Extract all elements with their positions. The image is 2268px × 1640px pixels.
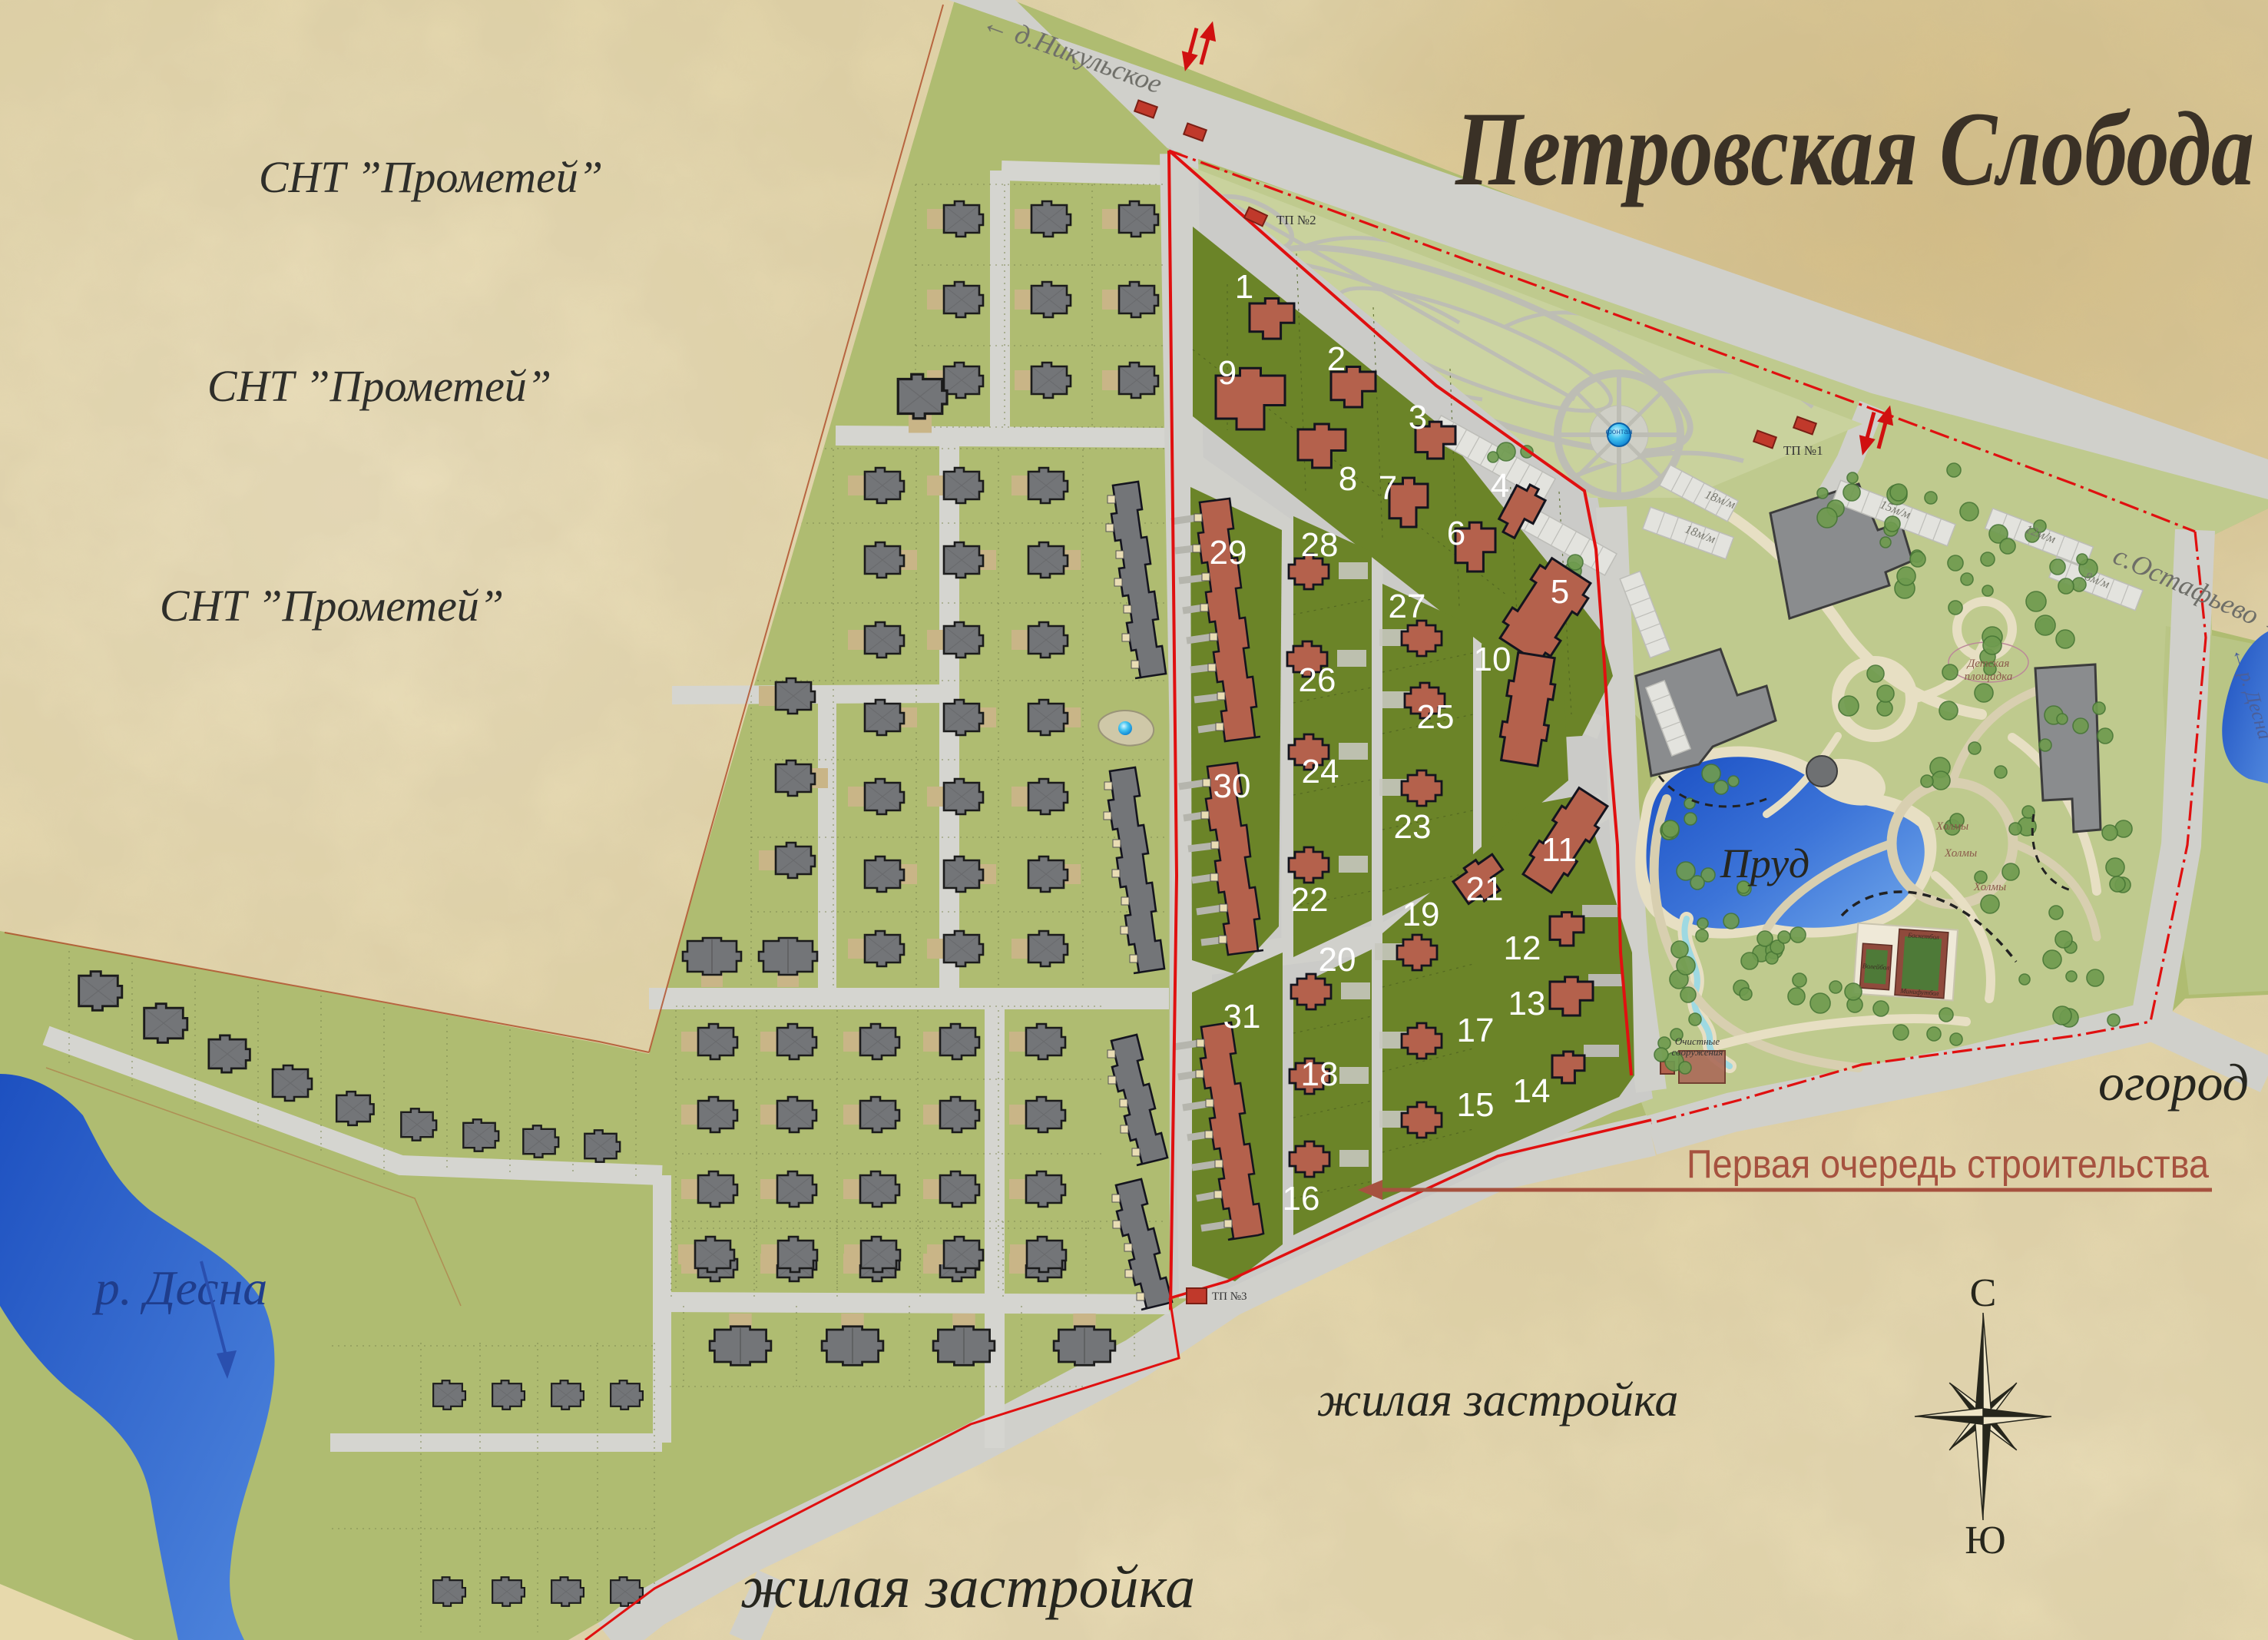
svg-text:4: 4 xyxy=(1491,467,1509,505)
svg-text:25: 25 xyxy=(1417,698,1455,736)
svg-text:18: 18 xyxy=(1301,1055,1339,1093)
svg-text:23: 23 xyxy=(1394,808,1432,846)
svg-text:СНТ ”Прометей”: СНТ ”Прометей” xyxy=(160,581,504,631)
svg-text:8: 8 xyxy=(1339,460,1357,498)
svg-text:19: 19 xyxy=(1402,896,1440,933)
svg-text:фонтан: фонтан xyxy=(1606,427,1633,436)
svg-text:15: 15 xyxy=(1457,1086,1495,1124)
svg-text:ТП №2: ТП №2 xyxy=(1276,213,1316,227)
svg-text:9: 9 xyxy=(1218,354,1237,392)
svg-text:26: 26 xyxy=(1299,661,1336,699)
svg-text:30: 30 xyxy=(1213,767,1251,805)
svg-text:1: 1 xyxy=(1235,268,1253,306)
svg-text:Холмы: Холмы xyxy=(1935,820,1968,833)
svg-text:Пруд: Пруд xyxy=(1720,840,1809,886)
svg-text:17: 17 xyxy=(1457,1012,1495,1049)
svg-text:сооружения: сооружения xyxy=(1672,1046,1723,1058)
svg-text:Петровская Слобода: Петровская Слобода xyxy=(1454,90,2254,207)
svg-text:жилая застройка: жилая застройка xyxy=(740,1553,1195,1620)
svg-text:5: 5 xyxy=(1551,573,1569,611)
svg-text:ТП №1: ТП №1 xyxy=(1783,443,1823,458)
svg-text:24: 24 xyxy=(1302,753,1339,790)
svg-text:жилая застройка: жилая застройка xyxy=(1317,1374,1679,1426)
svg-text:2: 2 xyxy=(1327,340,1346,378)
svg-text:16: 16 xyxy=(1283,1180,1320,1218)
svg-text:13: 13 xyxy=(1508,985,1546,1022)
svg-text:14: 14 xyxy=(1513,1072,1551,1110)
svg-text:Первая очередь строительства: Первая очередь строительства xyxy=(1687,1142,2209,1187)
svg-text:22: 22 xyxy=(1291,881,1329,919)
svg-text:СНТ ”Прометей”: СНТ ”Прометей” xyxy=(207,361,551,411)
svg-text:Детская: Детская xyxy=(1966,658,2010,670)
svg-text:31: 31 xyxy=(1223,998,1261,1035)
svg-text:12: 12 xyxy=(1504,929,1541,967)
svg-text:7: 7 xyxy=(1379,469,1397,507)
svg-text:3: 3 xyxy=(1409,399,1427,436)
svg-text:Холмы: Холмы xyxy=(1973,881,2006,893)
svg-text:Ю: Ю xyxy=(1965,1519,2005,1562)
svg-text:огород: огород xyxy=(2098,1053,2249,1112)
svg-text:Очистные: Очистные xyxy=(1675,1035,1720,1047)
svg-text:ТП №3: ТП №3 xyxy=(1212,1290,1247,1303)
svg-text:11: 11 xyxy=(1541,831,1577,869)
svg-text:28: 28 xyxy=(1301,526,1339,564)
svg-text:21: 21 xyxy=(1466,870,1504,908)
svg-text:С: С xyxy=(1970,1271,1997,1315)
svg-text:СНТ ”Прометей”: СНТ ”Прометей” xyxy=(259,152,603,202)
svg-text:27: 27 xyxy=(1389,588,1426,625)
svg-text:20: 20 xyxy=(1319,941,1356,979)
svg-text:Холмы: Холмы xyxy=(1944,847,1977,860)
svg-text:р. Десна: р. Десна xyxy=(92,1261,267,1315)
svg-text:6: 6 xyxy=(1447,515,1465,552)
svg-text:площадка: площадка xyxy=(1965,671,2013,683)
svg-text:29: 29 xyxy=(1210,534,1247,572)
svg-text:10: 10 xyxy=(1474,641,1511,678)
